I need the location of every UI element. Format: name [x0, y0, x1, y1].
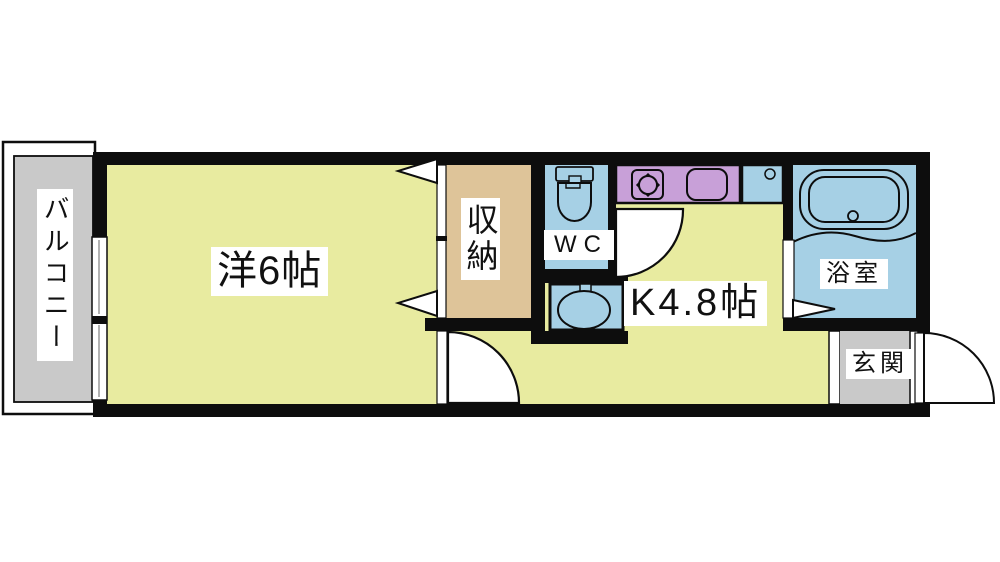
washing-machine-space [742, 165, 783, 203]
entrance-door-arc [924, 333, 994, 403]
western-room-label: 洋6帖 [211, 247, 328, 296]
floor-plan: バルコニー 洋6帖 収納 WC K4.8帖 浴室 玄関 [0, 0, 1000, 562]
wc-label: WC [544, 230, 614, 260]
bathroom-label: 浴室 [820, 259, 888, 289]
toilet-icon [556, 167, 593, 221]
stove-burner-icon [639, 176, 657, 194]
closet-door-divider [436, 236, 447, 241]
balcony-label: バルコニー [37, 189, 73, 361]
entrance-door-leaf [915, 333, 924, 403]
room-kitchen-door-leaf [437, 331, 447, 404]
entrance-label: 玄関 [846, 349, 914, 379]
wall-bathroom-bottom [783, 318, 930, 331]
kitchen-label: K4.8帖 [624, 281, 767, 326]
closet-label: 収納 [461, 198, 500, 280]
closet-door-panels [437, 165, 446, 318]
entrance-step-left [829, 331, 840, 404]
wall-closet-bottom [425, 318, 545, 331]
wall-under-basin [531, 331, 628, 344]
balcony-window-divider [92, 316, 107, 324]
wall-closet-wc [531, 152, 545, 344]
